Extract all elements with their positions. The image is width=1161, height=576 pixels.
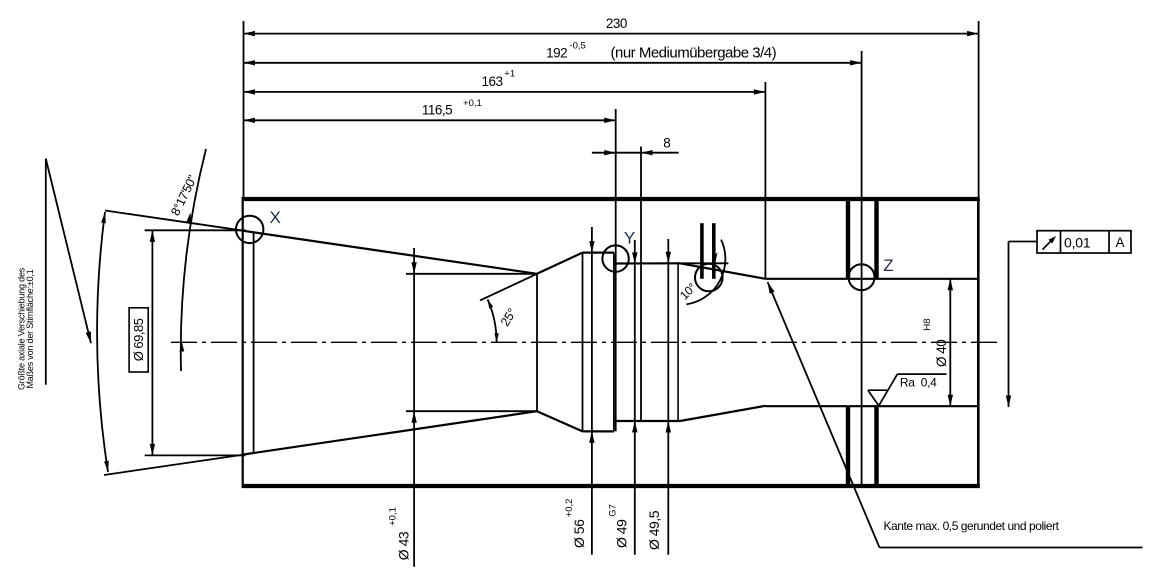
- svg-text:Maßes von der Stirnfläche:±0,1: Maßes von der Stirnfläche:±0,1: [25, 269, 35, 388]
- svg-text:+1: +1: [504, 69, 515, 80]
- svg-text:230: 230: [606, 16, 627, 31]
- svg-text:Ø 43: Ø 43: [396, 531, 412, 560]
- svg-text:A: A: [1115, 235, 1124, 250]
- svg-text:-0,5: -0,5: [569, 41, 585, 52]
- svg-text:Ø 56: Ø 56: [571, 519, 587, 548]
- svg-text:0,01: 0,01: [1064, 235, 1091, 251]
- svg-text:163: 163: [481, 74, 502, 89]
- svg-text:116,5: 116,5: [422, 102, 452, 117]
- svg-text:+0,2: +0,2: [564, 499, 575, 518]
- svg-text:+0,1: +0,1: [463, 98, 482, 109]
- svg-text:Ø 69,85: Ø 69,85: [131, 318, 146, 361]
- svg-text:Ra 0,4: Ra 0,4: [900, 376, 937, 390]
- svg-text:Ø 49: Ø 49: [614, 519, 630, 548]
- svg-text:Y: Y: [624, 229, 635, 248]
- svg-text:Z: Z: [883, 256, 893, 275]
- svg-text:Ø 40: Ø 40: [934, 340, 949, 367]
- svg-text:Kante max. 0,5 gerundet und po: Kante max. 0,5 gerundet und poliert: [884, 519, 1060, 533]
- svg-text:(nur Mediumübergabe 3/4): (nur Mediumübergabe 3/4): [611, 45, 777, 62]
- svg-text:+0,1: +0,1: [388, 507, 399, 526]
- svg-text:X: X: [270, 208, 281, 227]
- svg-text:8: 8: [663, 135, 670, 150]
- svg-text:G7: G7: [608, 504, 619, 517]
- svg-text:Ø 49,5: Ø 49,5: [646, 510, 662, 550]
- svg-text:H8: H8: [922, 318, 933, 330]
- svg-text:192: 192: [546, 46, 567, 61]
